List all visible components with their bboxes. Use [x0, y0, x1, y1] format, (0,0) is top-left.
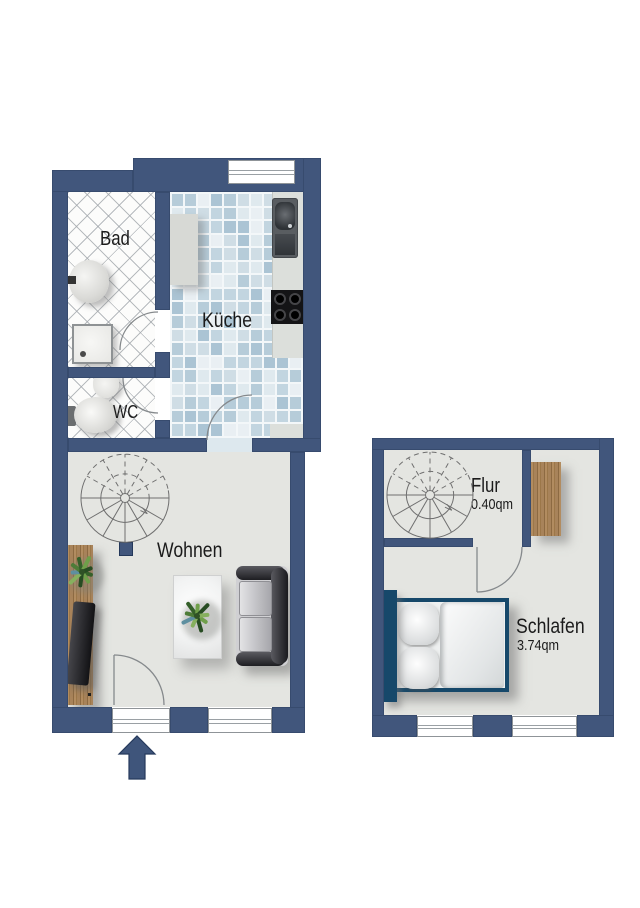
kitchen-tile — [290, 370, 301, 382]
burner — [289, 309, 301, 321]
kitchen-tile — [172, 302, 183, 314]
kitchen-tile — [224, 370, 235, 382]
kitchen-tile — [238, 235, 249, 247]
kitchen-tile — [251, 221, 262, 233]
kitchen-tile — [238, 248, 249, 260]
kitchen-tile — [211, 370, 222, 382]
kitchen-tile — [238, 262, 249, 274]
kitchen-tile — [224, 248, 235, 260]
room-label-flur: Flur — [471, 476, 500, 497]
sofa — [236, 566, 288, 666]
kitchen-tile — [238, 397, 249, 409]
kitchen-tile — [251, 357, 262, 369]
kitchen-tile — [198, 343, 209, 355]
kitchen-tile — [185, 289, 196, 301]
kitchen-tile — [198, 384, 209, 396]
kitchen-tile — [172, 330, 183, 342]
window — [417, 716, 473, 737]
kitchen-tile — [251, 302, 262, 314]
wall — [272, 707, 305, 733]
wall — [384, 538, 473, 547]
wall — [473, 715, 512, 737]
kitchen-cabinet — [170, 214, 198, 285]
wall — [155, 352, 170, 378]
kitchen-tile — [185, 343, 196, 355]
room-area-schlafen: 3.74qm — [517, 638, 559, 654]
kitchen-tile — [172, 397, 183, 409]
kitchen-tile — [264, 411, 275, 423]
kitchen-tile — [251, 208, 262, 220]
window — [208, 708, 272, 733]
kitchen-tile — [211, 397, 222, 409]
wall — [68, 367, 155, 378]
kitchen-tile — [172, 384, 183, 396]
kitchen-tile — [224, 275, 235, 287]
kitchen-tile — [198, 221, 209, 233]
kitchen-tile — [277, 384, 288, 396]
kitchen-tile — [238, 221, 249, 233]
kitchen-tile — [198, 424, 209, 436]
kitchen-tile — [238, 384, 249, 396]
kitchen-tile — [238, 208, 249, 220]
kitchen-tile — [172, 424, 183, 436]
kitchen-tile — [224, 411, 235, 423]
kitchen-tile — [211, 275, 222, 287]
kitchen-tile — [185, 357, 196, 369]
kitchen-tile — [264, 384, 275, 396]
kitchen-tile — [198, 357, 209, 369]
kitchen-tile — [277, 357, 288, 369]
kitchen-tile — [198, 262, 209, 274]
room-area-flur: 0.40qm — [471, 497, 513, 513]
kitchen-tile — [251, 424, 262, 436]
kitchen-tile — [251, 248, 262, 260]
wall — [68, 438, 207, 452]
kitchen-tile — [198, 194, 209, 206]
kitchen-tile — [211, 411, 222, 423]
kitchen-tile — [198, 235, 209, 247]
room-label-schlafen: Schlafen — [516, 616, 585, 638]
entrance-arrow — [119, 736, 155, 779]
kitchen-tile — [251, 397, 262, 409]
kitchen-tile — [290, 397, 301, 409]
kitchen-tile — [290, 357, 301, 369]
kitchen-tile — [224, 384, 235, 396]
kitchen-tile — [185, 424, 196, 436]
kitchen-tile — [198, 248, 209, 260]
burner — [274, 293, 286, 305]
kitchen-tile — [290, 411, 301, 423]
kitchen-tile — [264, 370, 275, 382]
burner — [274, 309, 286, 321]
wall — [52, 170, 133, 192]
kitchen-tile — [185, 316, 196, 328]
kitchen-tile — [264, 397, 275, 409]
kitchen-tile — [277, 397, 288, 409]
knob — [88, 693, 91, 696]
pillow — [399, 603, 439, 645]
wall — [372, 438, 614, 450]
kitchen-tile — [251, 384, 262, 396]
kitchen-tile — [251, 235, 262, 247]
wall — [52, 707, 112, 733]
kitchen-tile — [224, 343, 235, 355]
kitchen-tile — [198, 397, 209, 409]
sofa-cushion — [239, 617, 272, 652]
kitchen-tile — [251, 316, 262, 328]
wall — [155, 192, 170, 310]
bed-frame — [383, 598, 509, 692]
kitchen-tile — [224, 221, 235, 233]
plant — [174, 593, 220, 644]
kitchen-tile — [172, 370, 183, 382]
kitchen-counter-lower — [270, 424, 303, 438]
wall — [599, 438, 614, 733]
kitchen-tile — [251, 343, 262, 355]
kitchen-tile — [172, 411, 183, 423]
kitchen-tile — [211, 235, 222, 247]
kitchen-tile — [172, 194, 183, 206]
wall — [303, 158, 321, 452]
kitchen-tile — [172, 343, 183, 355]
kitchen-tile — [224, 262, 235, 274]
wall — [577, 715, 614, 737]
kitchen-tile — [251, 275, 262, 287]
room-label-bad: Bad — [100, 229, 130, 250]
sink-drainer — [275, 234, 295, 255]
kitchen-tile — [224, 424, 235, 436]
kitchen-tile — [211, 343, 222, 355]
kitchen-tile — [277, 411, 288, 423]
room-label-kueche: Küche — [202, 310, 252, 332]
wall — [252, 438, 321, 452]
bed-headboard — [383, 590, 397, 702]
kitchen-tile — [224, 397, 235, 409]
wall — [290, 452, 305, 733]
kitchen-tile — [185, 384, 196, 396]
kitchen-tile — [290, 384, 301, 396]
sink-bowl — [275, 202, 295, 230]
wardrobe — [531, 462, 561, 536]
kitchen-tile — [238, 289, 249, 301]
shower-drain — [80, 351, 86, 357]
kitchen-tile — [185, 302, 196, 314]
stove — [271, 290, 304, 324]
kitchen-tile — [211, 194, 222, 206]
kitchen-tile — [224, 235, 235, 247]
burner — [289, 293, 301, 305]
kitchen-tile — [211, 221, 222, 233]
kitchen-tile — [198, 275, 209, 287]
toilet — [74, 397, 117, 433]
wall — [170, 707, 208, 733]
column — [119, 542, 133, 556]
kitchen-tile — [185, 194, 196, 206]
window — [112, 708, 170, 733]
kitchen-tile — [238, 424, 249, 436]
kitchen-tile — [251, 411, 262, 423]
kitchen-tile — [238, 411, 249, 423]
kitchen-tile — [198, 411, 209, 423]
kitchen-tile — [211, 424, 222, 436]
kitchen-tile — [211, 262, 222, 274]
kitchen-tile — [238, 343, 249, 355]
wall — [155, 420, 170, 438]
kitchen-tile — [172, 289, 183, 301]
kitchen-tile — [198, 289, 209, 301]
kitchen-tile — [224, 208, 235, 220]
kitchen-tile — [198, 208, 209, 220]
floorplan-page: { "document": { "type": "floor-plan", "l… — [0, 0, 640, 908]
kitchen-tile — [198, 370, 209, 382]
kitchen-tile — [211, 248, 222, 260]
kueche-door-threshold — [207, 438, 252, 452]
kitchen-tile — [211, 357, 222, 369]
kitchen-tile — [172, 357, 183, 369]
kitchen-tile — [251, 370, 262, 382]
kitchen-tile — [238, 370, 249, 382]
kitchen-tile — [251, 330, 262, 342]
wall — [372, 715, 417, 737]
kitchen-sink-unit — [272, 198, 298, 258]
room-label-wc: WC — [113, 403, 138, 422]
window — [512, 716, 577, 737]
kitchen-tile — [185, 370, 196, 382]
kitchen-tile — [185, 397, 196, 409]
kitchen-tile — [238, 275, 249, 287]
kitchen-tile — [185, 330, 196, 342]
kitchen-tile — [185, 411, 196, 423]
kitchen-tile — [224, 289, 235, 301]
wall — [52, 170, 68, 733]
kitchen-tile — [277, 370, 288, 382]
kitchen-tile — [211, 384, 222, 396]
sofa-cushion — [239, 581, 272, 616]
shower — [72, 324, 113, 364]
kitchen-window — [228, 160, 295, 184]
kitchen-tile — [224, 194, 235, 206]
room-label-wohnen: Wohnen — [157, 540, 222, 562]
faucet-dot — [288, 224, 292, 228]
sofa-backrest — [271, 568, 288, 664]
duvet — [440, 602, 504, 688]
kitchen-tile — [251, 194, 262, 206]
kitchen-tile — [238, 194, 249, 206]
wall — [372, 438, 384, 733]
kitchen-tile — [251, 289, 262, 301]
kitchen-tile — [211, 208, 222, 220]
kitchen-tile — [264, 357, 275, 369]
wall — [522, 450, 531, 547]
kitchen-tile — [251, 262, 262, 274]
kitchen-tile — [224, 357, 235, 369]
kitchen-tile — [211, 289, 222, 301]
kitchen-tile — [238, 357, 249, 369]
kitchen-tile — [172, 316, 183, 328]
pillow — [399, 647, 439, 689]
